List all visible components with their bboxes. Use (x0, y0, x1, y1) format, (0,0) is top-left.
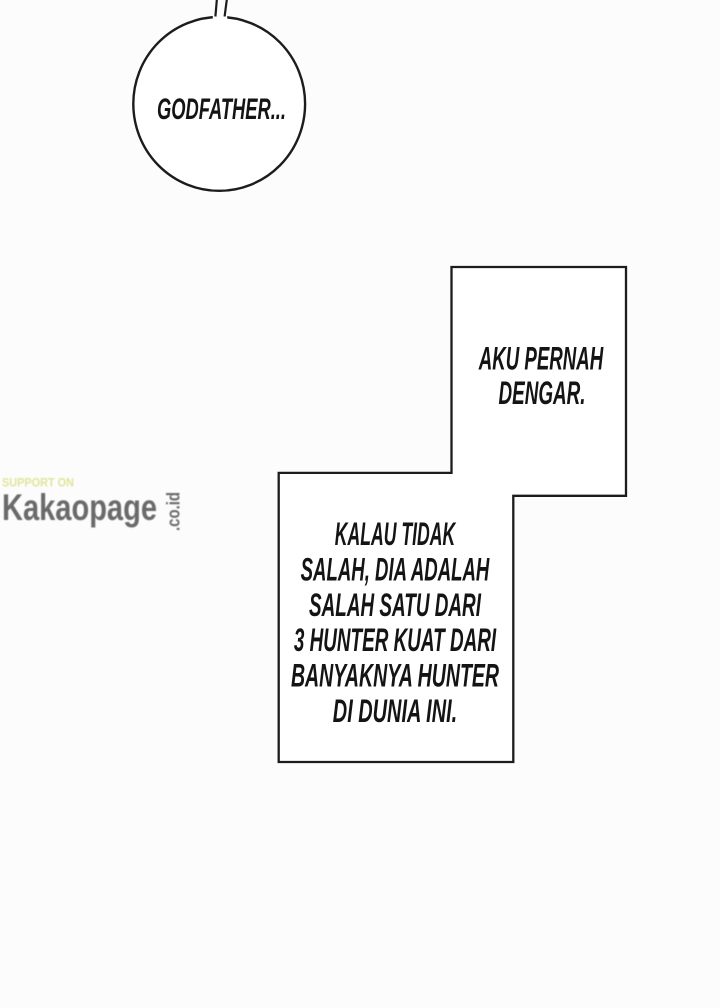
svg-text:DI DUNIA INI.: DI DUNIA INI. (333, 693, 457, 729)
svg-text:AKU PERNAH: AKU PERNAH (478, 341, 604, 377)
svg-text:GODFATHER...: GODFATHER... (157, 93, 286, 126)
svg-text:SALAH SATU DARI: SALAH SATU DARI (309, 587, 481, 623)
svg-text:.co.id: .co.id (163, 492, 184, 531)
svg-text:SALAH, DIA ADALAH: SALAH, DIA ADALAH (301, 551, 491, 587)
svg-text:3 HUNTER KUAT DARI: 3 HUNTER KUAT DARI (294, 622, 497, 658)
svg-text:Kakaopage: Kakaopage (2, 487, 157, 528)
svg-text:KALAU TIDAK: KALAU TIDAK (335, 516, 457, 552)
svg-text:BANYAKNYA HUNTER: BANYAKNYA HUNTER (291, 658, 499, 694)
svg-text:DENGAR.: DENGAR. (499, 375, 586, 411)
